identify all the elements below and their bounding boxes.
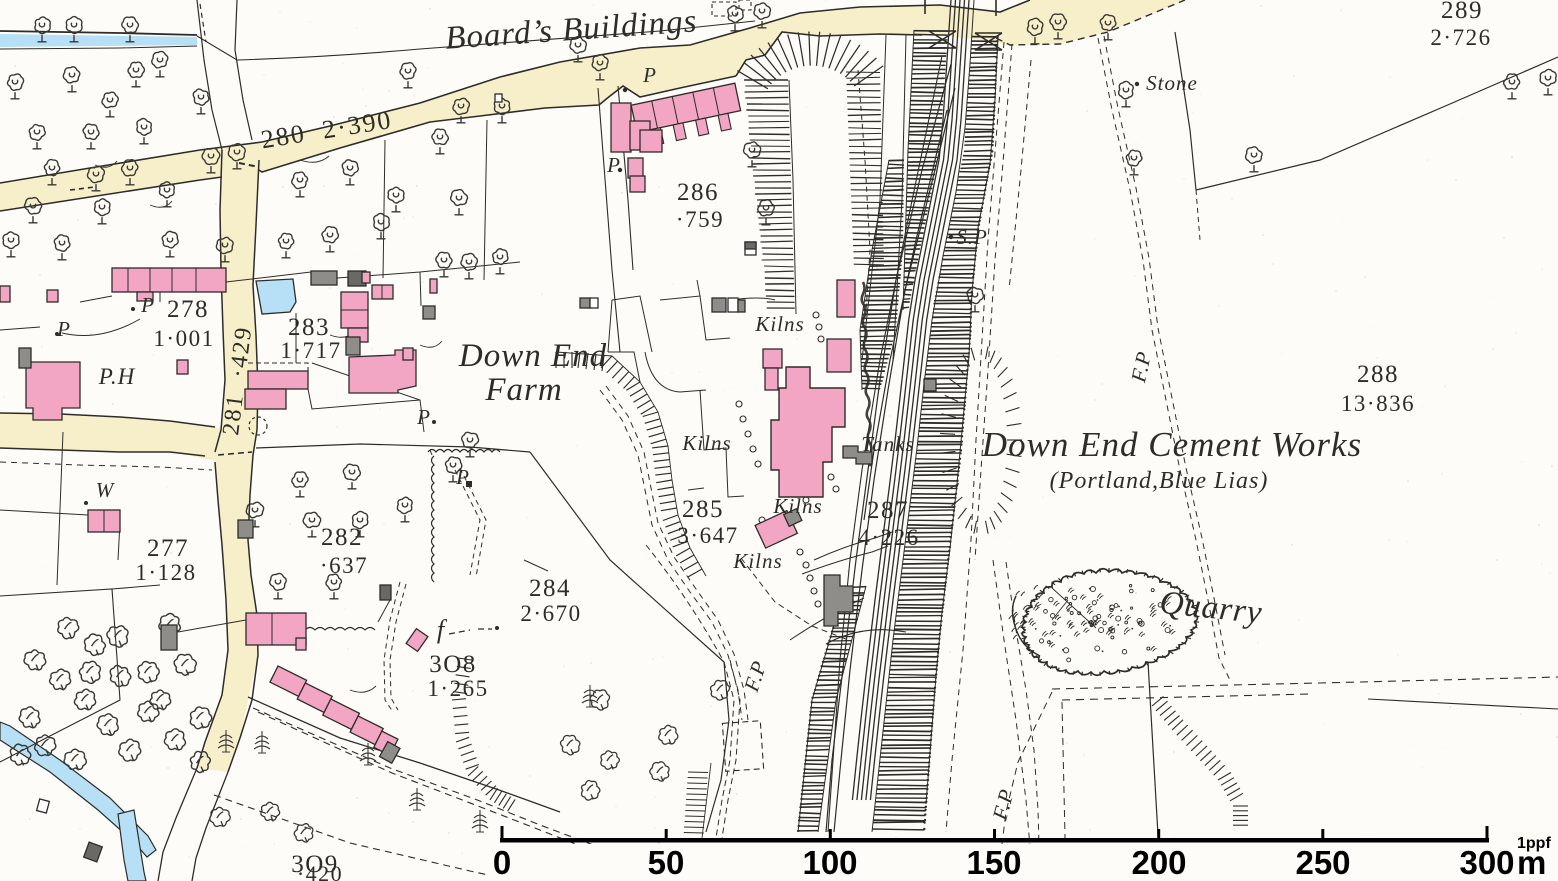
svg-text:S.P: S.P [956,225,988,249]
svg-text:285: 285 [682,496,724,523]
svg-text:·420: ·420 [297,861,343,881]
svg-text:278: 278 [167,296,209,323]
svg-text:Kilns: Kilns [772,494,822,518]
svg-text:1ppf: 1ppf [1517,835,1551,852]
svg-text:P: P [416,405,431,429]
svg-text:0: 0 [493,844,511,881]
svg-text:300: 300 [1459,844,1514,881]
svg-text:·637: ·637 [320,553,368,578]
svg-text:P: P [455,465,470,489]
svg-text:50: 50 [648,844,685,881]
svg-text:286: 286 [677,179,719,206]
svg-text:3O8: 3O8 [429,651,477,678]
svg-text:Tanks: Tanks [861,432,914,456]
svg-text:3·647: 3·647 [677,523,738,548]
svg-text:P: P [606,153,621,177]
svg-text:200: 200 [1131,844,1186,881]
svg-text:P.H: P.H [98,364,136,389]
svg-text:282: 282 [321,524,363,551]
svg-text:1·717: 1·717 [280,338,341,363]
svg-text:(Portland,Blue Lias): (Portland,Blue Lias) [1050,468,1269,494]
svg-text:288: 288 [1357,361,1399,388]
svg-text:2·726: 2·726 [1430,25,1491,50]
svg-text:4·226: 4·226 [858,525,919,550]
svg-text:283: 283 [288,314,330,341]
svg-text:284: 284 [529,575,571,602]
svg-text:Farm: Farm [484,372,562,408]
svg-text:P: P [140,293,155,317]
svg-text:13·836: 13·836 [1341,391,1415,416]
svg-text:250: 250 [1295,844,1350,881]
svg-text:150: 150 [966,844,1021,881]
svg-text:100: 100 [802,844,857,881]
svg-text:·759: ·759 [676,207,724,232]
svg-text:W: W [96,478,116,502]
svg-text:Stone: Stone [1146,71,1198,95]
svg-text:P: P [642,63,657,87]
svg-text:289: 289 [1441,0,1483,24]
svg-text:Down End Cement Works: Down End Cement Works [981,425,1362,464]
svg-text:Kilns: Kilns [732,549,782,573]
svg-text:Down End: Down End [458,338,607,374]
svg-text:P: P [56,317,71,341]
svg-text:277: 277 [147,535,189,562]
svg-text:1·001: 1·001 [153,326,214,351]
svg-text:Kilns: Kilns [681,431,731,455]
svg-text:1·128: 1·128 [135,560,196,585]
svg-text:1·265: 1·265 [427,676,488,701]
svg-text:2·670: 2·670 [520,601,581,626]
svg-text:Kilns: Kilns [754,312,804,336]
svg-text:287: 287 [867,497,909,524]
